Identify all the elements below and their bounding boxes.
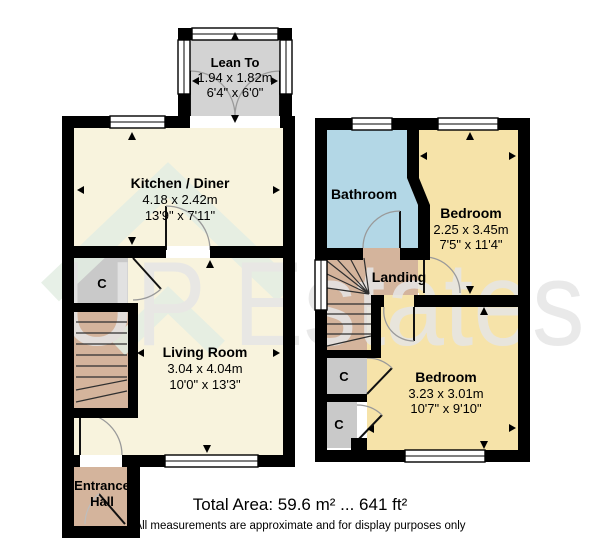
entrance-hall-name-line1: Entrance — [74, 478, 130, 493]
wall — [400, 248, 430, 260]
wall — [74, 246, 166, 258]
wall — [315, 450, 405, 462]
wall — [74, 303, 138, 312]
wall — [418, 205, 430, 248]
bedroom-rear-metric: 2.25 x 3.45m — [433, 222, 508, 237]
disclaimer-text: All measurements are approximate and for… — [134, 520, 465, 532]
ground-cupboard-label: C — [97, 276, 107, 291]
lean-to-wall — [278, 28, 292, 40]
lean-to-wall — [280, 94, 292, 116]
total-area-text: Total Area: 59.6 m² ... 641 ft² — [193, 495, 408, 514]
bathroom-name: Bathroom — [331, 186, 397, 202]
wall — [392, 118, 438, 130]
wall — [62, 116, 74, 538]
lean-to-wall — [178, 28, 192, 40]
first-cupboard2-label: C — [334, 417, 344, 432]
living-room-metric: 3.04 x 4.04m — [167, 361, 242, 376]
lean-to-imperial: 6'4" x 6'0" — [207, 85, 264, 100]
wall — [351, 438, 367, 450]
bedroom-rear-imperial: 7'5" x 11'4" — [439, 237, 502, 252]
wall — [128, 312, 138, 408]
first-cupboard1-label: C — [339, 369, 349, 384]
measure-arrow-down — [231, 115, 239, 123]
wall — [74, 455, 80, 467]
wall — [283, 116, 295, 467]
kitchen-imperial: 13'9" x 7'11" — [145, 208, 216, 223]
kitchen-name: Kitchen / Diner — [131, 175, 230, 191]
lean-to-metric: 1.94 x 1.82m — [197, 70, 272, 85]
wall — [315, 310, 327, 462]
bedroom-front-imperial: 10'7" x 9'10" — [410, 401, 482, 416]
bedroom-front-name: Bedroom — [415, 369, 476, 385]
floorplan-svg: UP Estates — [0, 0, 600, 554]
bedroom-front-metric: 3.23 x 3.01m — [408, 386, 483, 401]
wall — [315, 394, 367, 402]
wall — [210, 246, 283, 258]
landing-name: Landing — [372, 269, 426, 285]
footer: Total Area: 59.6 m² ... 641 ft² All meas… — [134, 495, 465, 532]
living-room-imperial: 10'0" x 13'3" — [169, 377, 241, 392]
wall — [485, 450, 530, 462]
wall — [327, 248, 363, 260]
wall — [371, 295, 384, 307]
wall — [407, 130, 419, 178]
kitchen-metric: 4.18 x 2.42m — [142, 192, 217, 207]
wall — [62, 526, 140, 538]
wall — [315, 350, 381, 358]
bedroom-rear-name: Bedroom — [440, 205, 501, 221]
entrance-hall-name-line2: Hall — [90, 494, 114, 509]
living-room-name: Living Room — [163, 344, 248, 360]
floorplan-canvas: UP Estates — [0, 0, 600, 554]
wall — [62, 408, 138, 418]
wall — [258, 455, 295, 467]
wall — [315, 118, 327, 260]
lean-to-name: Lean To — [211, 55, 260, 70]
wall — [414, 295, 530, 307]
wall — [165, 116, 190, 128]
wall — [518, 118, 530, 462]
lean-to-wall — [178, 94, 190, 116]
